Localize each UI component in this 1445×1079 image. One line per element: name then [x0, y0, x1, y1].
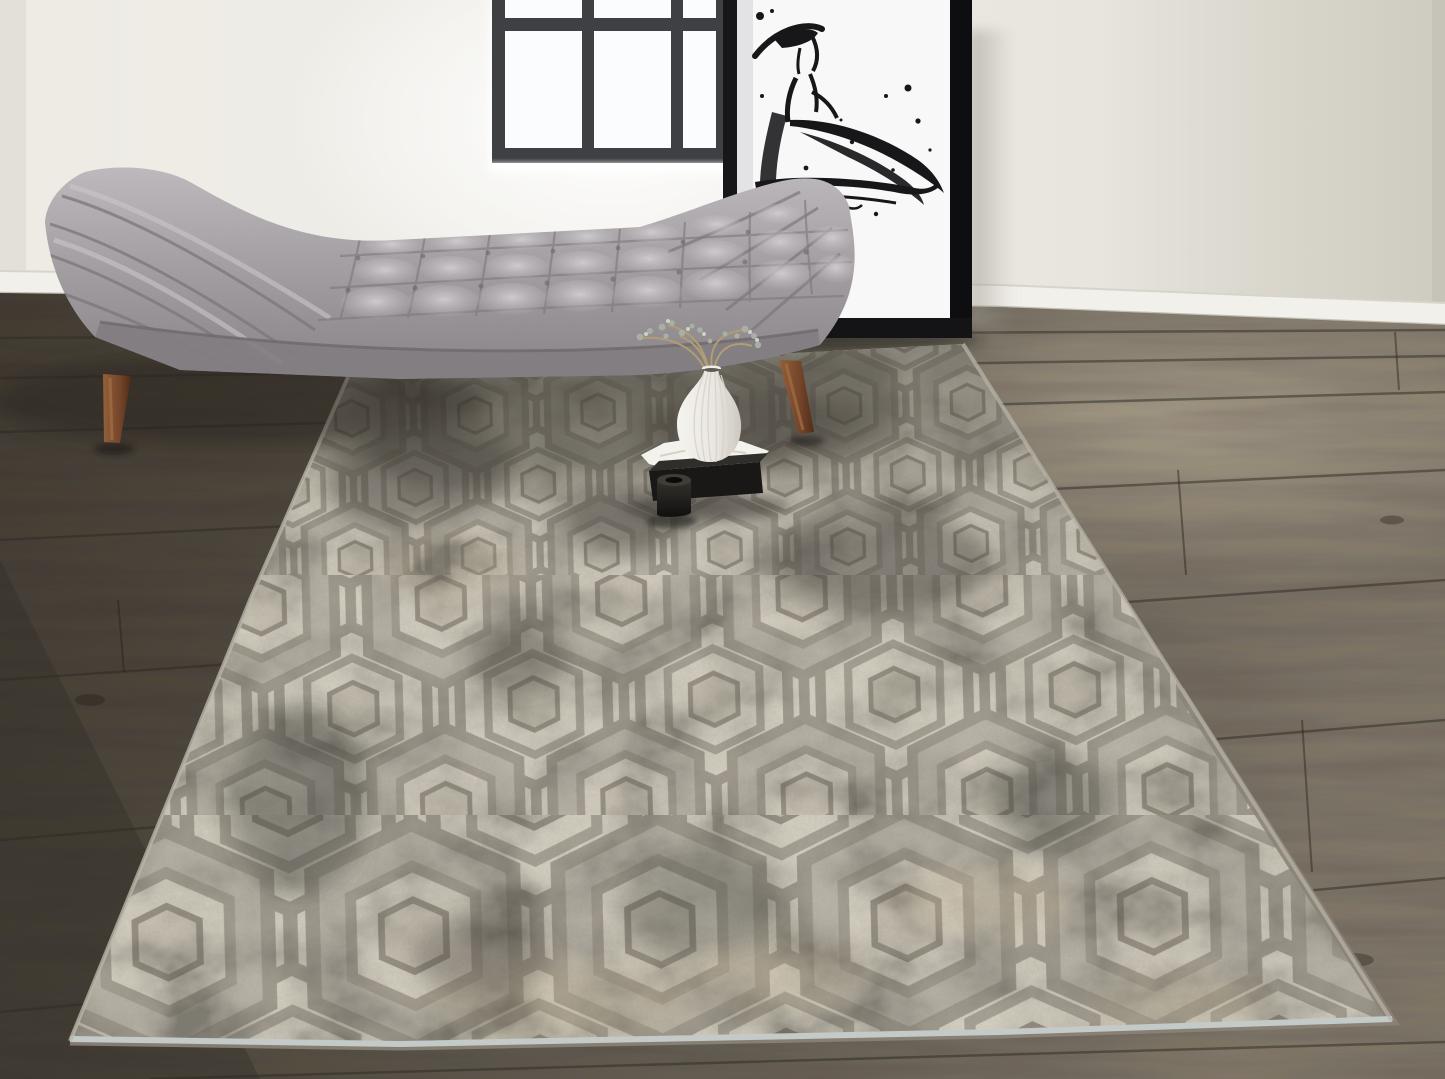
artwork-wall-shadow [968, 30, 1014, 330]
window-mullion-vertical-2 [671, 0, 683, 152]
interior-scene [0, 0, 1445, 1079]
left-leg-shadow [94, 443, 134, 455]
wall-corner-edge [1432, 0, 1445, 340]
window [488, 0, 738, 172]
window-frame-bottom [492, 148, 731, 163]
artwork-frame-side [950, 0, 972, 338]
window-mullion-horizontal [503, 18, 718, 31]
jar-hole [666, 477, 683, 483]
window-sill-glow [488, 163, 738, 170]
left-leg-highlight [110, 378, 112, 440]
photo-stage [0, 0, 1445, 1079]
right-leg-shadow [788, 436, 824, 447]
black-jar [657, 474, 691, 517]
window-mullion-vertical-1 [582, 0, 594, 152]
